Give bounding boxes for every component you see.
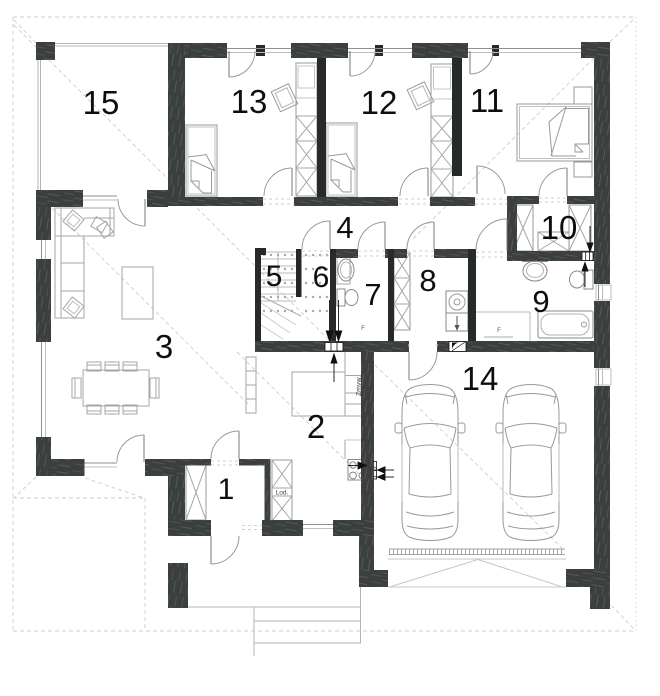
svg-text:3: 3 (155, 328, 173, 365)
svg-text:9: 9 (532, 284, 549, 319)
svg-text:2: 2 (307, 408, 325, 445)
svg-text:1: 1 (218, 473, 235, 506)
svg-text:15: 15 (83, 84, 120, 121)
svg-text:F: F (497, 328, 501, 334)
svg-text:5: 5 (266, 260, 283, 293)
svg-text:6: 6 (313, 261, 330, 294)
svg-text:12: 12 (361, 84, 398, 121)
svg-text:7: 7 (364, 277, 381, 312)
svg-text:Lod.: Lod. (276, 490, 289, 497)
svg-text:11: 11 (470, 82, 504, 119)
svg-text:Zmyw.: Zmyw. (356, 376, 363, 396)
svg-text:4: 4 (336, 210, 353, 245)
svg-text:F: F (361, 326, 365, 332)
svg-text:Pral.: Pral. (362, 500, 368, 513)
svg-text:8: 8 (419, 263, 436, 298)
svg-text:10: 10 (541, 209, 578, 246)
svg-text:14: 14 (462, 360, 499, 397)
svg-text:13: 13 (231, 83, 268, 120)
